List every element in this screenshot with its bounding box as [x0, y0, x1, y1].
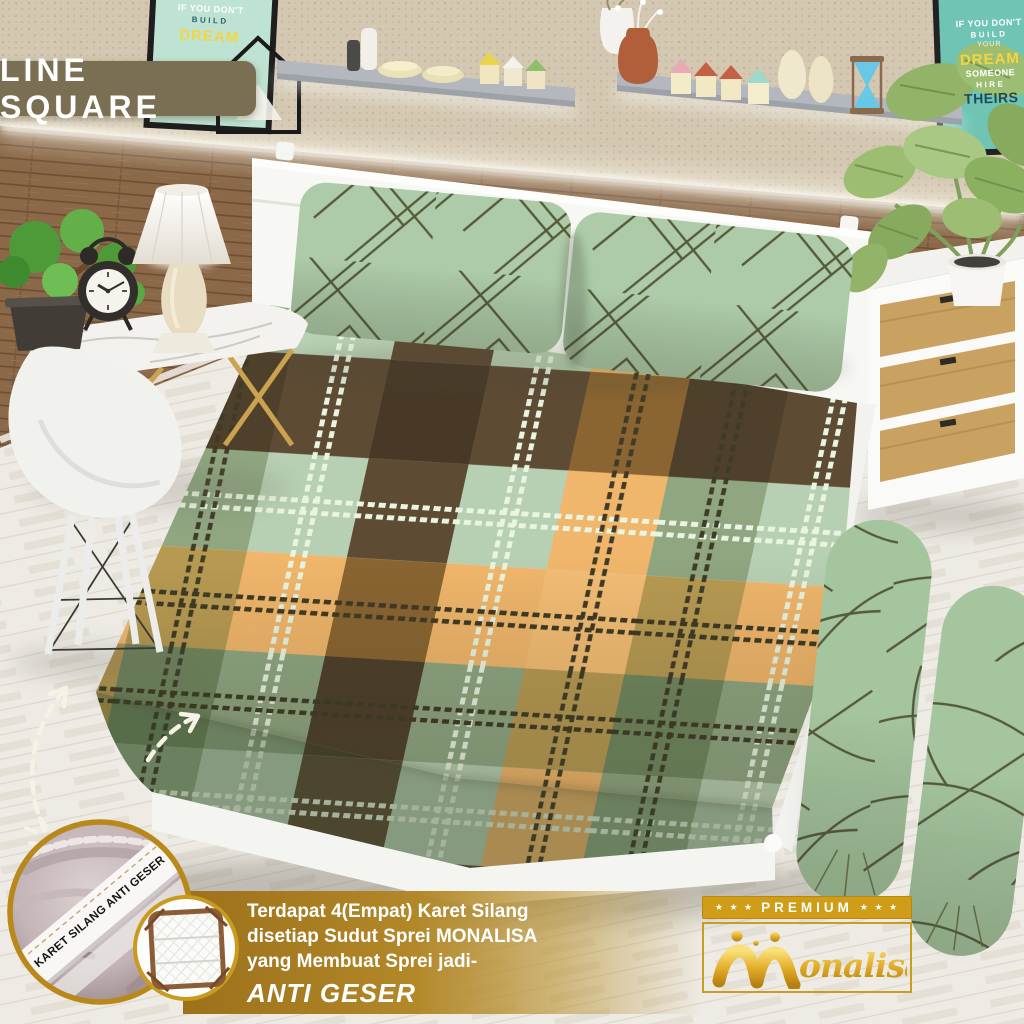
pillow-gap-shadow — [561, 232, 587, 368]
poster-left-text: IF YOU DON'T BUILD DREAM — [157, 1, 263, 47]
product-title-banner: LINE SQUARE — [0, 61, 256, 116]
pillow-left — [289, 181, 573, 356]
poster-right-line-1: IF YOU DON'T — [944, 16, 1024, 29]
bonsai-pot — [10, 301, 88, 351]
monalisa-logo-box: onalisa — [702, 922, 912, 993]
pillow-right — [561, 210, 856, 394]
plant-pot — [948, 254, 1006, 306]
monalisa-logo: onalisa — [707, 927, 907, 989]
info-banner-text: Terdapat 4(Empat) Karet Silang disetiap … — [247, 899, 567, 1009]
mattress-diagram — [150, 910, 224, 988]
monalisa-monogram — [719, 930, 794, 985]
anti-geser-highlight: ANTI GESER — [247, 978, 567, 1009]
star-icons-right: ★ ★ ★ — [860, 903, 899, 912]
logo-suffix-text: onalisa — [799, 946, 907, 985]
poster-right-line-3: YOUR — [945, 39, 1024, 50]
lamp-body — [161, 264, 207, 333]
poster-right-text: IF YOU DON'T BUILD YOUR DREAM SOMEONE HI… — [944, 16, 1024, 107]
poster-right-line-5: SOMEONE — [946, 66, 1024, 79]
lamp-base — [152, 333, 216, 353]
info-line-1: Terdapat 4(Empat) Karet Silang — [247, 899, 567, 924]
premium-label: PREMIUM — [761, 901, 853, 915]
info-line-3: yang Membuat Sprei jadi- — [247, 949, 567, 974]
poster-right-line-7: THEIRS — [947, 89, 1024, 108]
info-line-2: disetiap Sudut Sprei MONALISA — [247, 924, 567, 949]
bed-corner-knob — [764, 834, 782, 852]
premium-ribbon: ★ ★ ★ PREMIUM ★ ★ ★ — [702, 896, 912, 919]
mattress-diagram-badge — [135, 897, 237, 999]
product-advert-image: LINE SQUARE IF YOU DON'T BUILD DREAM IF … — [0, 0, 1024, 1024]
product-title: LINE SQUARE — [0, 52, 256, 126]
star-icons-left: ★ ★ ★ — [715, 903, 754, 912]
